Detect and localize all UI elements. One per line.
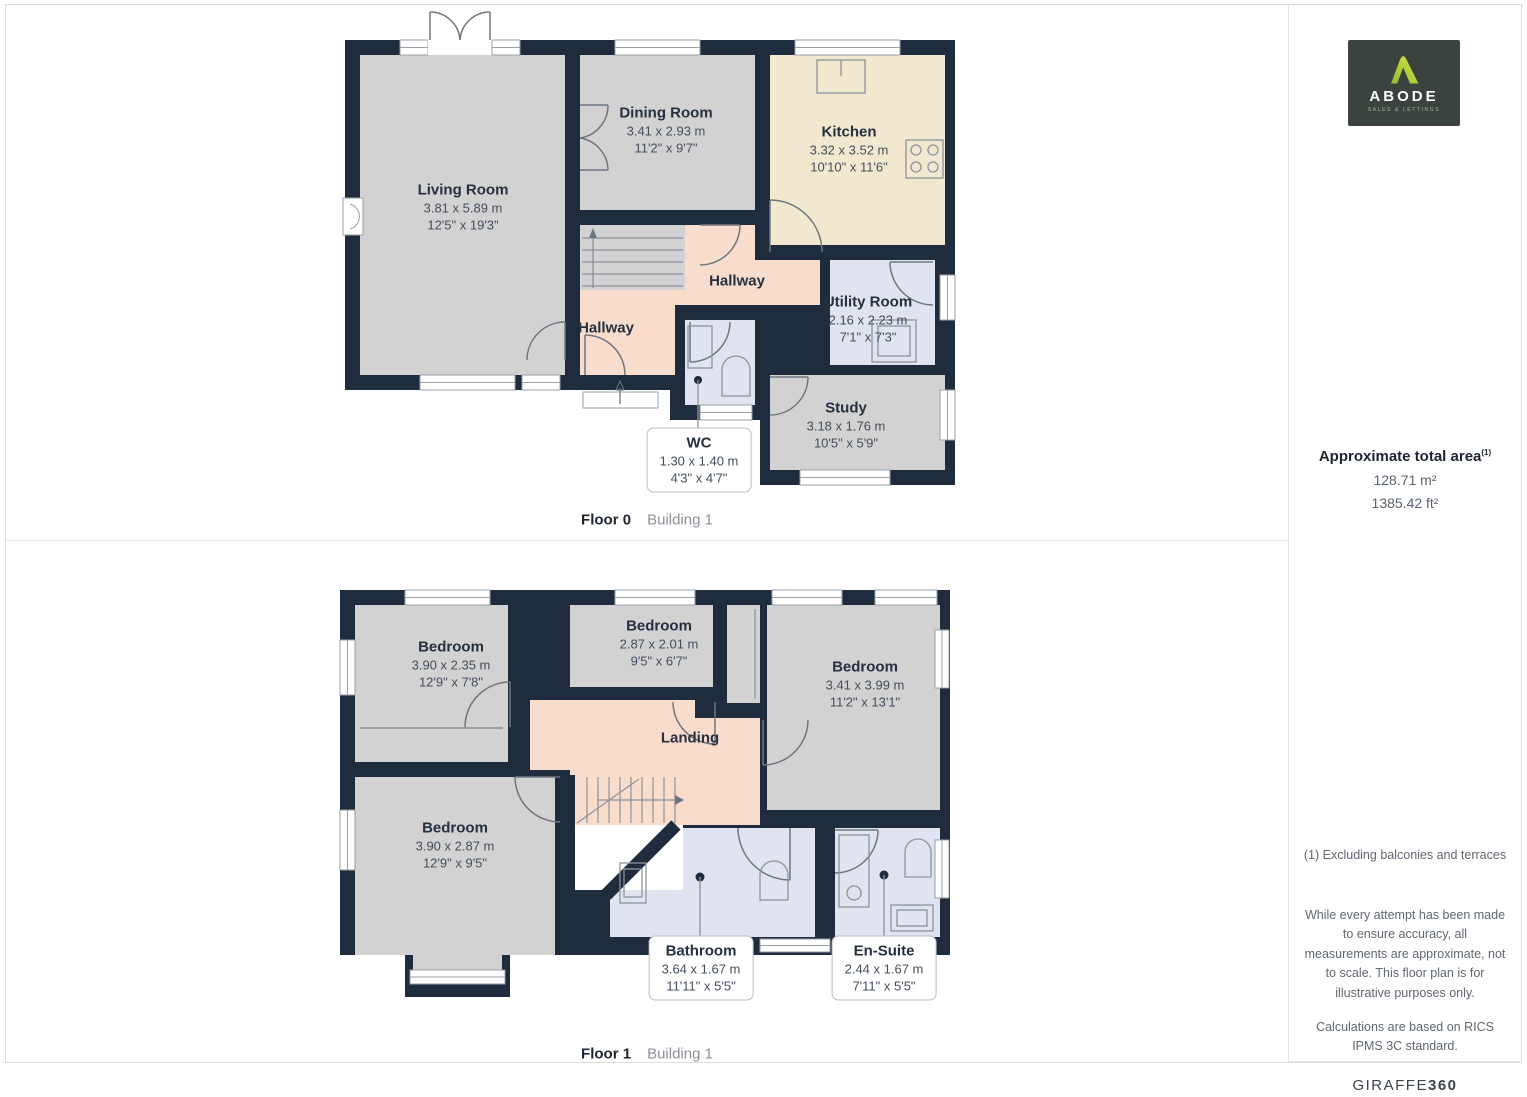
room-name: Living Room: [418, 181, 509, 200]
footnote-text: (1) Excluding balconies and terraces: [1289, 848, 1521, 862]
room-label-bedroom1: Bedroom 3.90 x 2.35 m 12'9" x 7'8": [412, 638, 491, 691]
agency-name: ABODE: [1369, 88, 1438, 105]
room-label-hallway: Hallway: [709, 272, 765, 291]
sidebar: ABODE SALES & LETTINGS Approximate total…: [1289, 4, 1521, 1062]
stair-area: [580, 225, 685, 290]
disclaimer-accuracy: While every attempt has been made to ens…: [1300, 906, 1510, 1003]
floor0-caption-floor: Floor 0: [581, 512, 631, 529]
room-label-bedroom4: Bedroom 3.90 x 2.87 m 12'9" x 9'5": [416, 819, 495, 872]
giraffe360-watermark: GIRAFFE360: [1300, 1074, 1510, 1097]
room-dims-m: 3.81 x 5.89 m: [418, 200, 509, 217]
hallway2-area: [580, 305, 675, 375]
room-label-wc: WC 1.30 x 1.40 m 4'3" x 4'7": [647, 428, 752, 493]
bay-floor: [413, 955, 502, 970]
agency-tagline: SALES & LETTINGS: [1368, 107, 1440, 113]
floor0-caption: Floor 0Building 1: [581, 512, 713, 529]
floor-divider: [6, 540, 1288, 541]
total-area-ft2: 1385.42 ft²: [1289, 495, 1521, 511]
floor1-caption-building: Building 1: [647, 1046, 713, 1063]
room-label-hallway2: Hallway: [578, 319, 634, 338]
floor0-caption-building: Building 1: [647, 512, 713, 529]
room-label-bedroom3: Bedroom 3.41 x 3.99 m 11'2" x 13'1": [826, 658, 905, 711]
agency-logo: ABODE SALES & LETTINGS: [1348, 40, 1460, 126]
room-label-bathroom: Bathroom 3.64 x 1.67 m 11'11" x 5'5": [649, 936, 754, 1001]
abode-logo-icon: [1385, 53, 1423, 85]
total-area-block: Approximate total area(1) 128.71 m² 1385…: [1289, 448, 1521, 511]
total-area-m2: 128.71 m²: [1289, 472, 1521, 488]
wc-area: [685, 320, 755, 405]
sidebar-hline-4: [1289, 1061, 1520, 1062]
fireplace: [343, 198, 363, 235]
disclaimer-block: While every attempt has been made to ens…: [1300, 906, 1510, 1097]
ensuite-area: [835, 828, 940, 937]
room-label-kitchen: Kitchen 3.32 x 3.52 m 10'10" x 11'6": [810, 123, 889, 176]
room-label-landing: Landing: [661, 729, 719, 748]
floor1-caption-floor: Floor 1: [581, 1046, 631, 1063]
footnote-marker: (1): [1481, 448, 1491, 457]
room-label-ensuite: En-Suite 2.44 x 1.67 m 7'11" x 5'5": [832, 936, 937, 1001]
total-area-title: Approximate total area(1): [1289, 448, 1521, 465]
room-label-utility-room: Utility Room 2.16 x 2.23 m 7'1" x 7'3": [824, 293, 912, 346]
room-label-living-room: Living Room 3.81 x 5.89 m 12'5" x 19'3": [418, 181, 509, 234]
disclaimer-standard: Calculations are based on RICS IPMS 3C s…: [1300, 1018, 1510, 1057]
floor1-caption: Floor 1Building 1: [581, 1046, 713, 1063]
room-label-dining-room: Dining Room 3.41 x 2.93 m 11'2" x 9'7": [619, 104, 712, 157]
room-label-study: Study 3.18 x 1.76 m 10'5" x 5'9": [807, 399, 886, 452]
room-label-bedroom2: Bedroom 2.87 x 2.01 m 9'5" x 6'7": [620, 617, 699, 670]
room-dims-ft: 12'5" x 19'3": [418, 217, 509, 234]
